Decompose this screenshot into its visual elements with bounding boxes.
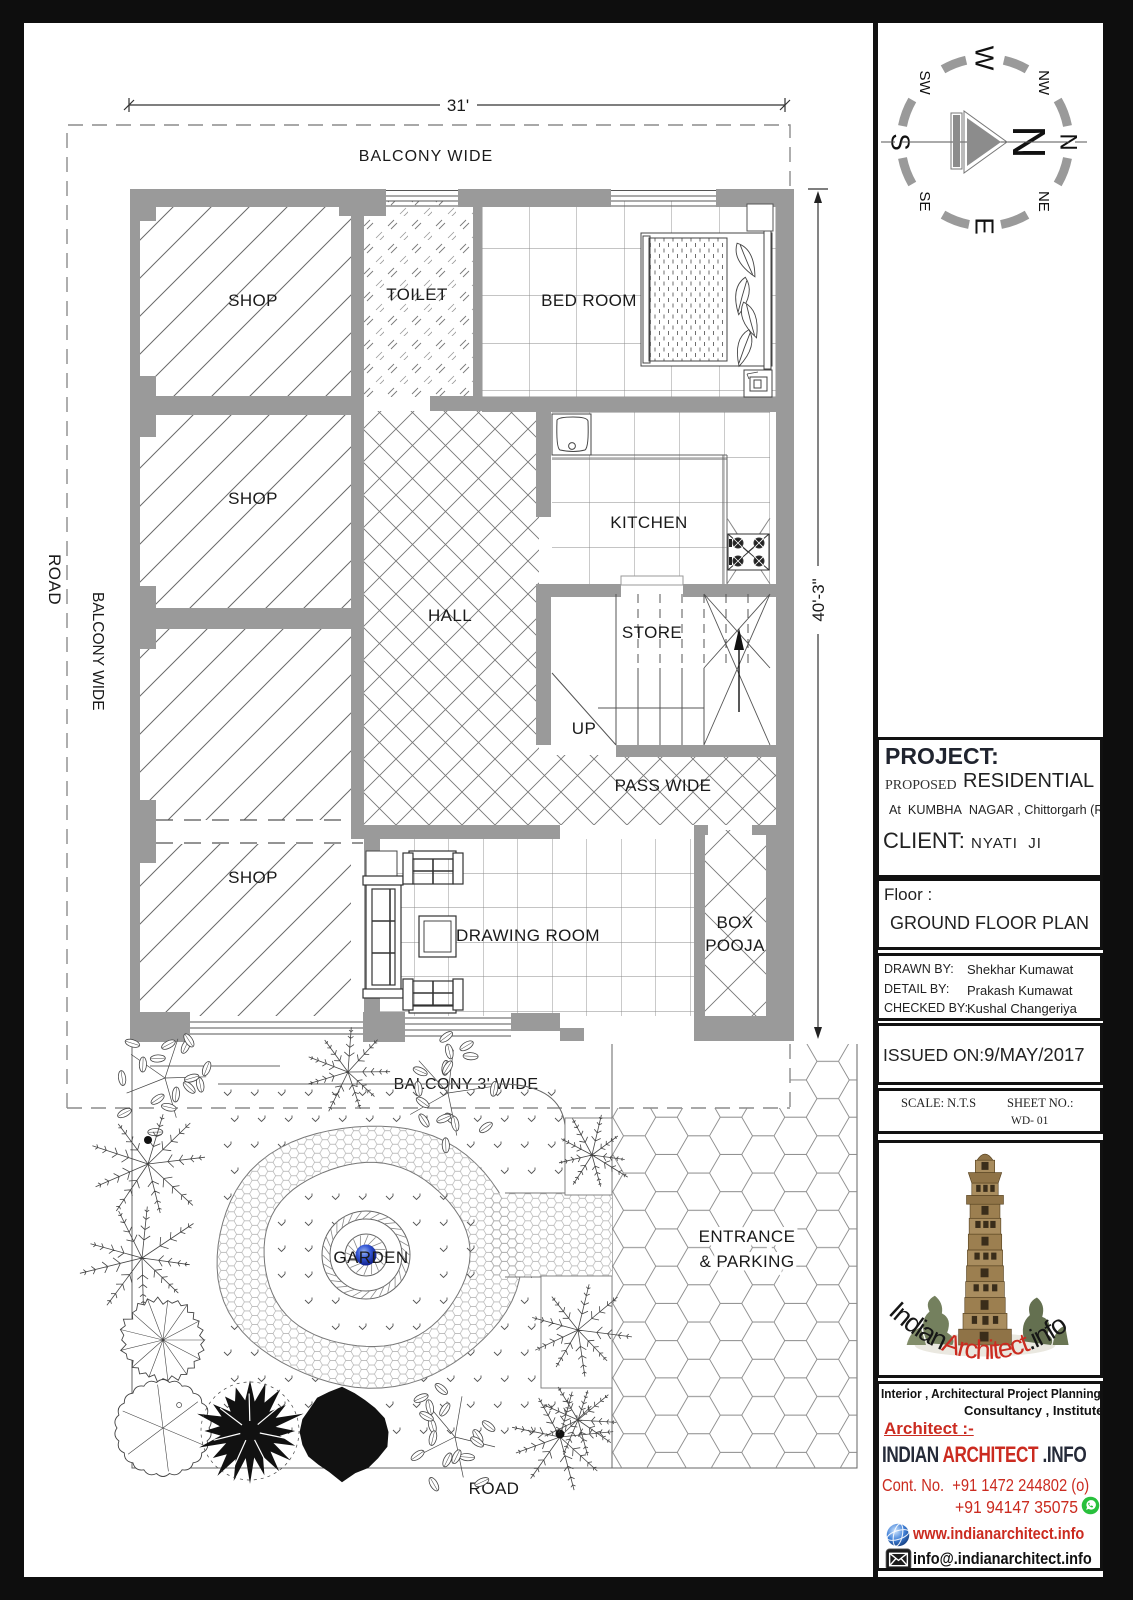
- svg-text:SHOP: SHOP: [228, 868, 278, 887]
- svg-text:NW: NW: [1035, 70, 1052, 96]
- svg-text:TOILET: TOILET: [386, 285, 448, 304]
- svg-text:BOX: BOX: [716, 913, 753, 932]
- svg-text:STORE: STORE: [622, 623, 682, 642]
- svg-text:KITCHEN: KITCHEN: [610, 513, 687, 532]
- svg-text:SE: SE: [916, 191, 933, 211]
- svg-text:GARDEN: GARDEN: [333, 1248, 408, 1267]
- svg-text:UP: UP: [572, 719, 596, 738]
- svg-text:BALCONY WIDE: BALCONY WIDE: [89, 592, 106, 711]
- svg-text:BALCONY WIDE: BALCONY WIDE: [359, 148, 493, 165]
- svg-text:DRAWING ROOM: DRAWING ROOM: [456, 926, 600, 945]
- svg-text:SW: SW: [916, 71, 933, 96]
- svg-text:E: E: [970, 217, 1000, 234]
- svg-text:31': 31': [447, 96, 469, 115]
- svg-text:PASS WIDE: PASS WIDE: [615, 776, 712, 795]
- svg-text:SHOP: SHOP: [228, 291, 278, 310]
- svg-text:HALL: HALL: [428, 606, 472, 625]
- svg-text:NE: NE: [1035, 191, 1052, 212]
- svg-text:W: W: [970, 46, 1000, 71]
- svg-text:BED ROOM: BED ROOM: [541, 291, 637, 310]
- svg-text:SHOP: SHOP: [228, 489, 278, 508]
- svg-text:40'-3": 40'-3": [809, 578, 828, 621]
- svg-text:& PARKING: & PARKING: [700, 1252, 795, 1271]
- svg-text:ENTRANCE: ENTRANCE: [699, 1227, 796, 1246]
- svg-text:ROAD: ROAD: [45, 554, 64, 605]
- svg-text:POOJA: POOJA: [705, 936, 765, 955]
